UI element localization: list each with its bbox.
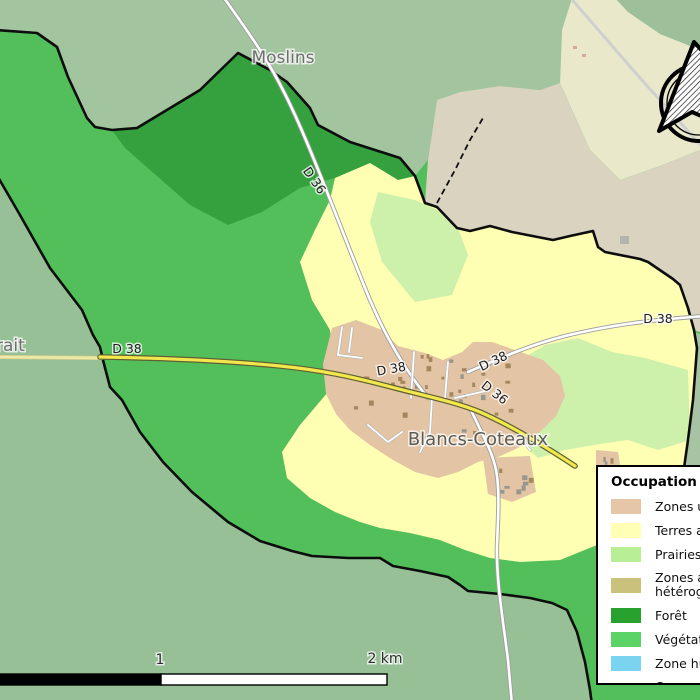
building <box>460 374 463 379</box>
deco-dot <box>573 46 577 49</box>
region-urban-east <box>596 450 620 465</box>
building <box>523 482 529 486</box>
building <box>504 486 509 489</box>
building <box>354 406 358 409</box>
building <box>403 413 408 418</box>
building <box>429 357 433 362</box>
building <box>529 478 534 483</box>
place-label-partial-rait: rait <box>0 336 25 356</box>
building <box>421 355 424 359</box>
legend-item: Zones urbanisées <box>611 499 700 514</box>
deco-dot <box>582 54 586 57</box>
legend-swatch-fill <box>611 632 641 647</box>
building <box>441 377 444 380</box>
building <box>462 368 467 371</box>
building <box>611 458 614 464</box>
scale-label-1: 1 <box>156 652 165 668</box>
road-d38-west <box>0 357 102 358</box>
legend-item-label: Zones urbanisées <box>655 500 700 514</box>
building <box>522 486 526 491</box>
building <box>449 392 453 397</box>
building <box>505 364 510 369</box>
legend-item-label: Forêt <box>655 609 687 623</box>
building <box>398 377 402 381</box>
building <box>400 381 405 384</box>
building <box>500 490 505 494</box>
building <box>427 366 432 371</box>
building <box>472 383 475 388</box>
legend-panel: Occupation des sols Zones urbaniséesTerr… <box>596 465 700 685</box>
legend-swatch-fill <box>611 547 641 562</box>
building <box>449 359 453 363</box>
legend-swatch-fill <box>611 499 641 514</box>
road-label-d38-west: D 38 <box>112 341 142 356</box>
building-outside <box>620 236 629 244</box>
map-canvas[interactable]: MoslinsraitBlancs-CoteauxD 36D 38D 38D 3… <box>0 0 700 700</box>
legend-swatch-fill <box>611 523 641 538</box>
legend-title: Occupation des sols <box>611 474 700 490</box>
legend-item-label: Végétation arbustive <box>655 633 700 647</box>
road-label-d38-east: D 38 <box>643 311 673 326</box>
building <box>458 390 461 393</box>
legend-item: Zones agricoles hétérogènes <box>611 571 700 599</box>
legend-swatch-fill <box>611 656 641 671</box>
scale-label-2km: 2 km <box>367 651 402 667</box>
building <box>481 395 486 400</box>
legend-item: Zone humide <box>611 656 700 671</box>
building <box>495 413 499 416</box>
legend-item: Végétation arbustive <box>611 632 700 647</box>
legend-item-label: Prairies <box>655 548 700 562</box>
place-label-blancs-coteaux: Blancs-Coteaux <box>408 429 549 450</box>
legend-item-label: Zone humide <box>655 657 700 671</box>
building <box>522 475 527 480</box>
legend-swatch-fill <box>611 608 641 623</box>
legend-item: Prairies <box>611 547 700 562</box>
building <box>499 469 502 473</box>
legend-item-label: Zones agricoles hétérogènes <box>655 571 700 599</box>
map-page: MoslinsraitBlancs-CoteauxD 36D 38D 38D 3… <box>0 0 700 700</box>
building <box>505 381 510 384</box>
building <box>516 489 521 494</box>
scale-bar <box>0 674 387 685</box>
legend-item-label: Cours d'eau <box>655 680 700 685</box>
legend-item: Cours d'eau <box>611 680 700 685</box>
building <box>603 457 606 462</box>
building <box>509 409 514 413</box>
legend-item: Terres arables <box>611 523 700 538</box>
building <box>425 385 428 389</box>
legend-swatch-fill <box>611 578 641 593</box>
legend-item-label: Terres arables <box>655 524 700 538</box>
building <box>369 401 374 406</box>
place-label-moslins: Moslins <box>251 48 314 68</box>
legend-item: Forêt <box>611 608 700 623</box>
